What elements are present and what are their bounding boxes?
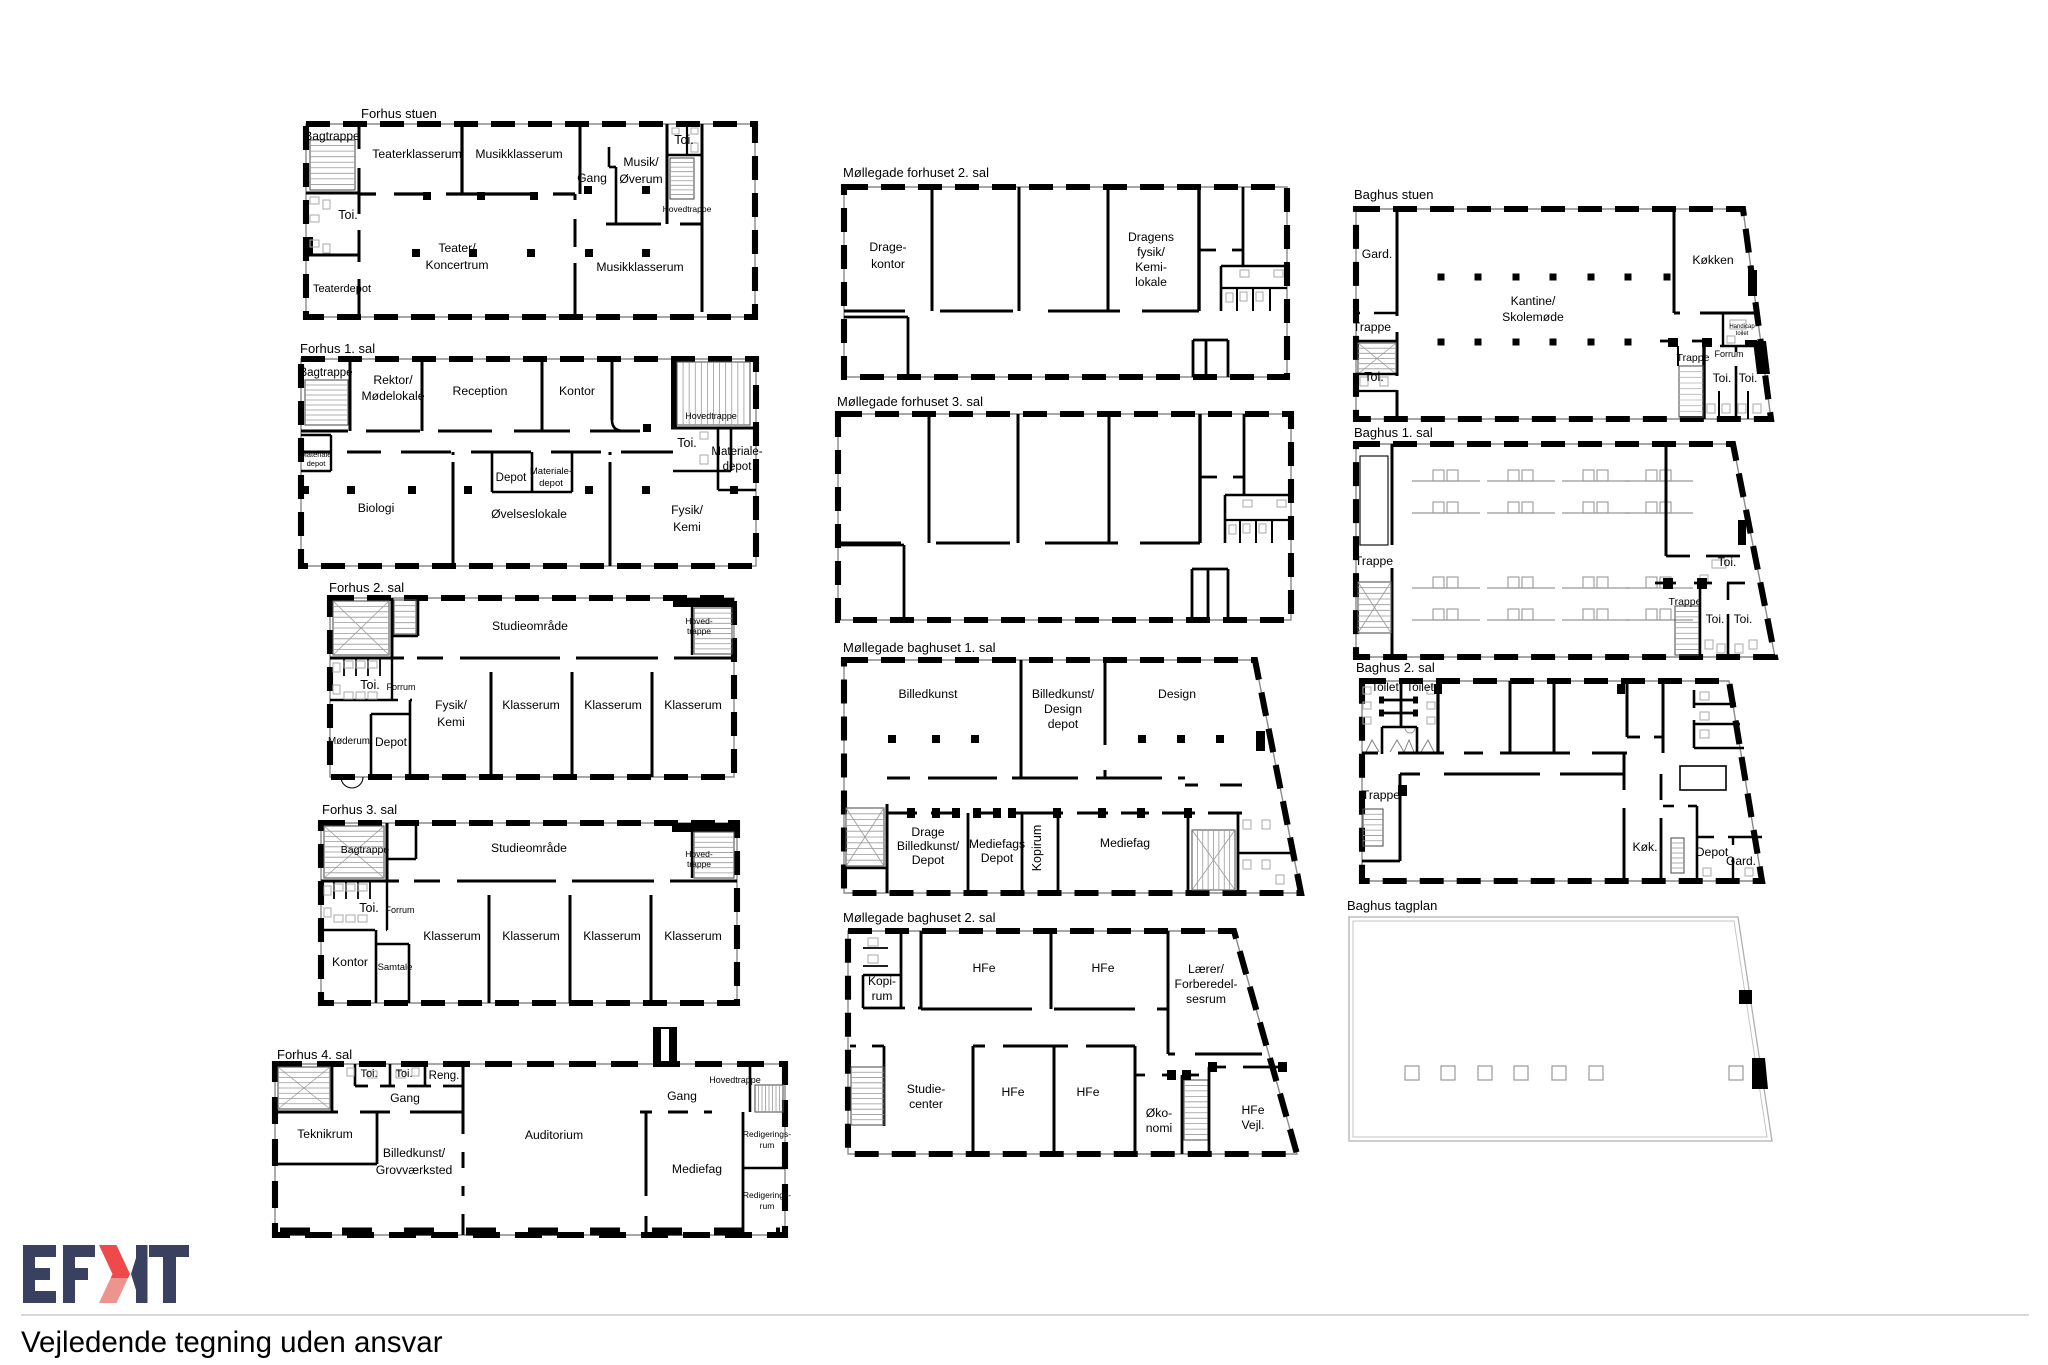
svg-text:Gang: Gang	[667, 1089, 697, 1103]
svg-text:Depot: Depot	[912, 853, 945, 867]
svg-text:Drage-: Drage-	[869, 240, 906, 254]
svg-text:Gard.: Gard.	[1726, 854, 1756, 868]
svg-text:Materiale-: Materiale-	[711, 446, 762, 458]
svg-text:Klasserum: Klasserum	[583, 929, 641, 943]
svg-text:Samtale: Samtale	[378, 962, 413, 973]
svg-text:depot: depot	[307, 459, 327, 468]
svg-text:Køkken: Køkken	[1692, 253, 1733, 267]
svg-text:Møllegade forhuset 3. sal: Møllegade forhuset 3. sal	[837, 394, 983, 409]
svg-text:Musikklasserum: Musikklasserum	[596, 260, 683, 274]
svg-text:Depot: Depot	[496, 472, 527, 484]
svg-text:Gang: Gang	[577, 171, 607, 185]
svg-text:Trappe: Trappe	[1677, 352, 1710, 364]
svg-text:kontor: kontor	[871, 257, 905, 271]
svg-text:Møllegade baghuset 1. sal: Møllegade baghuset 1. sal	[843, 640, 996, 655]
svg-text:Kopi-: Kopi-	[868, 974, 896, 988]
svg-text:depot: depot	[1048, 717, 1079, 731]
svg-text:center: center	[909, 1097, 943, 1111]
svg-text:HFe: HFe	[972, 961, 995, 975]
svg-text:Teater/: Teater/	[438, 241, 476, 255]
svg-text:Baghus 1. sal: Baghus 1. sal	[1354, 425, 1433, 440]
svg-text:Møderum: Møderum	[328, 736, 370, 747]
svg-text:Toi.: Toi.	[395, 1068, 412, 1080]
svg-text:Toilet: Toilet	[1371, 680, 1399, 694]
svg-text:Toi.: Toi.	[338, 208, 357, 222]
svg-text:Trappe: Trappe	[1362, 788, 1400, 802]
svg-text:Køk.: Køk.	[1632, 840, 1657, 854]
svg-text:Klasserum: Klasserum	[664, 929, 722, 943]
svg-text:fysik/: fysik/	[1137, 245, 1165, 259]
svg-text:Forhus 2. sal: Forhus 2. sal	[329, 580, 404, 595]
svg-text:depot: depot	[723, 461, 753, 473]
svg-text:Kantine/: Kantine/	[1511, 294, 1556, 308]
svg-text:Kemi: Kemi	[437, 715, 465, 729]
svg-text:Møllegade forhuset 2. sal: Møllegade forhuset 2. sal	[843, 165, 989, 180]
svg-text:Skolemøde: Skolemøde	[1502, 310, 1564, 324]
svg-text:sesrum: sesrum	[1186, 992, 1226, 1006]
svg-text:Toi.: Toi.	[360, 1068, 377, 1080]
svg-text:rum: rum	[872, 989, 893, 1003]
svg-text:Kemi-: Kemi-	[1135, 260, 1167, 274]
svg-text:Klasserum: Klasserum	[584, 698, 642, 712]
svg-text:Forhus stuen: Forhus stuen	[361, 106, 437, 121]
svg-text:Trappe: Trappe	[1355, 554, 1393, 568]
svg-text:toilet: toilet	[1736, 331, 1749, 337]
svg-text:Toi.: Toi.	[360, 678, 379, 692]
svg-text:Forhus 1. sal: Forhus 1. sal	[300, 341, 375, 356]
svg-text:Toi.: Toi.	[359, 901, 378, 915]
svg-text:Klasserum: Klasserum	[502, 929, 560, 943]
svg-text:HFe: HFe	[1241, 1103, 1264, 1117]
svg-text:Baghus tagplan: Baghus tagplan	[1347, 898, 1437, 913]
svg-text:Hovedtrappe: Hovedtrappe	[685, 411, 737, 421]
svg-text:Forrum: Forrum	[386, 905, 415, 915]
svg-text:Mediefag: Mediefag	[1100, 836, 1150, 850]
svg-text:Billedkunst/: Billedkunst/	[897, 839, 960, 853]
svg-text:rum: rum	[760, 1140, 775, 1150]
svg-text:Vejl.: Vejl.	[1241, 1118, 1264, 1132]
svg-text:Teknikrum: Teknikrum	[297, 1127, 353, 1141]
svg-text:trappe: trappe	[687, 859, 711, 869]
svg-text:Biologi: Biologi	[358, 501, 395, 515]
svg-text:Lærer/: Lærer/	[1188, 962, 1225, 976]
svg-text:Hovedtrappe: Hovedtrappe	[663, 204, 712, 214]
svg-text:Fysik/: Fysik/	[671, 503, 703, 517]
svg-text:Toi.: Toi.	[1713, 371, 1732, 385]
svg-text:Teaterklasserum: Teaterklasserum	[372, 147, 461, 161]
svg-text:Hoved-: Hoved-	[685, 849, 713, 859]
svg-text:Forberedel-: Forberedel-	[1175, 977, 1238, 991]
svg-text:Mediefag: Mediefag	[672, 1162, 722, 1176]
svg-text:Fysik/: Fysik/	[435, 698, 467, 712]
svg-text:Møllegade baghuset 2. sal: Møllegade baghuset 2. sal	[843, 910, 996, 925]
svg-text:Depot: Depot	[1696, 845, 1729, 859]
svg-text:Baghus 2. sal: Baghus 2. sal	[1356, 660, 1435, 675]
svg-text:Billedkunst/: Billedkunst/	[1032, 687, 1095, 701]
svg-text:Materiale-: Materiale-	[530, 466, 572, 477]
svg-text:Kontor: Kontor	[332, 955, 368, 969]
svg-text:Reng.: Reng.	[429, 1070, 460, 1082]
svg-text:Gang: Gang	[390, 1091, 420, 1105]
svg-text:Trappe: Trappe	[1669, 596, 1702, 608]
svg-text:Øverum: Øverum	[619, 172, 662, 186]
svg-text:Toi.: Toi.	[677, 436, 696, 450]
svg-text:Kontor: Kontor	[559, 384, 595, 398]
svg-text:Klasserum: Klasserum	[502, 698, 560, 712]
svg-text:Koncertrum: Koncertrum	[426, 258, 489, 272]
svg-text:Toi.: Toi.	[1739, 371, 1758, 385]
svg-text:Mødelokale: Mødelokale	[362, 389, 425, 403]
svg-text:Klasserum: Klasserum	[423, 929, 481, 943]
svg-text:Rektor/: Rektor/	[373, 373, 413, 387]
svg-text:Materiale: Materiale	[301, 450, 332, 459]
svg-text:Reception: Reception	[453, 384, 508, 398]
svg-text:Auditorium: Auditorium	[525, 1128, 583, 1142]
svg-text:Øvelseslokale: Øvelseslokale	[491, 507, 567, 521]
svg-text:Handicap: Handicap	[1729, 324, 1755, 330]
svg-text:Toi.: Toi.	[1706, 612, 1725, 626]
svg-text:Bagtrappe: Bagtrappe	[304, 129, 360, 143]
svg-text:Toi.: Toi.	[1734, 612, 1753, 626]
svg-text:Billedkunst: Billedkunst	[899, 687, 959, 701]
svg-text:Gard.: Gard.	[1362, 247, 1392, 261]
svg-text:Kopirum: Kopirum	[1030, 825, 1044, 872]
svg-text:Drage: Drage	[911, 825, 944, 839]
svg-text:HFe: HFe	[1076, 1085, 1099, 1099]
svg-text:trappe: trappe	[687, 626, 711, 636]
svg-text:Musik/: Musik/	[623, 155, 659, 169]
svg-text:Baghus stuen: Baghus stuen	[1354, 187, 1434, 202]
svg-text:Toilet: Toilet	[1406, 680, 1434, 694]
svg-text:Grovværksted: Grovværksted	[376, 1163, 453, 1177]
svg-text:Studieområde: Studieområde	[491, 841, 567, 855]
svg-text:rum: rum	[760, 1201, 775, 1211]
svg-text:Design: Design	[1044, 702, 1082, 716]
svg-text:Depot: Depot	[981, 851, 1014, 865]
svg-text:Forrum: Forrum	[387, 682, 416, 692]
svg-text:Vejledende tegning uden ansvar: Vejledende tegning uden ansvar	[21, 1326, 443, 1359]
svg-text:Mediefags: Mediefags	[969, 837, 1025, 851]
svg-text:Studieområde: Studieområde	[492, 619, 568, 633]
svg-text:HFe: HFe	[1091, 961, 1114, 975]
svg-text:Toi.: Toi.	[1364, 370, 1383, 384]
svg-text:Teaterdepot: Teaterdepot	[313, 283, 371, 295]
svg-text:Øko-: Øko-	[1146, 1106, 1172, 1120]
svg-text:Dragens: Dragens	[1128, 230, 1174, 244]
svg-text:Redigerings-: Redigerings-	[743, 1190, 791, 1200]
svg-text:Studie-: Studie-	[907, 1082, 946, 1096]
svg-text:Design: Design	[1158, 687, 1196, 701]
svg-text:Toi.: Toi.	[674, 133, 693, 147]
svg-text:Toi.: Toi.	[1718, 555, 1737, 569]
svg-text:lokale: lokale	[1135, 275, 1167, 289]
svg-text:Kemi: Kemi	[673, 520, 701, 534]
svg-text:Bagtrappe: Bagtrappe	[341, 844, 390, 856]
svg-text:Forrum: Forrum	[1715, 349, 1744, 359]
svg-text:Bagtrappe: Bagtrappe	[299, 367, 352, 379]
svg-text:nomi: nomi	[1146, 1121, 1172, 1135]
svg-text:HFe: HFe	[1001, 1085, 1024, 1099]
svg-text:Hoved-: Hoved-	[685, 616, 713, 626]
svg-text:Redigerings-: Redigerings-	[743, 1129, 791, 1139]
svg-text:Forhus 3. sal: Forhus 3. sal	[322, 802, 397, 817]
svg-text:Klasserum: Klasserum	[664, 698, 722, 712]
svg-text:Forhus 4. sal: Forhus 4. sal	[277, 1047, 352, 1062]
svg-text:depot: depot	[539, 478, 563, 489]
svg-text:Hovedtrappe: Hovedtrappe	[709, 1075, 761, 1085]
svg-text:Trappe: Trappe	[1353, 320, 1391, 334]
svg-text:Musikklasserum: Musikklasserum	[475, 147, 562, 161]
svg-text:Depot: Depot	[375, 735, 408, 749]
svg-text:Billedkunst/: Billedkunst/	[383, 1146, 446, 1160]
